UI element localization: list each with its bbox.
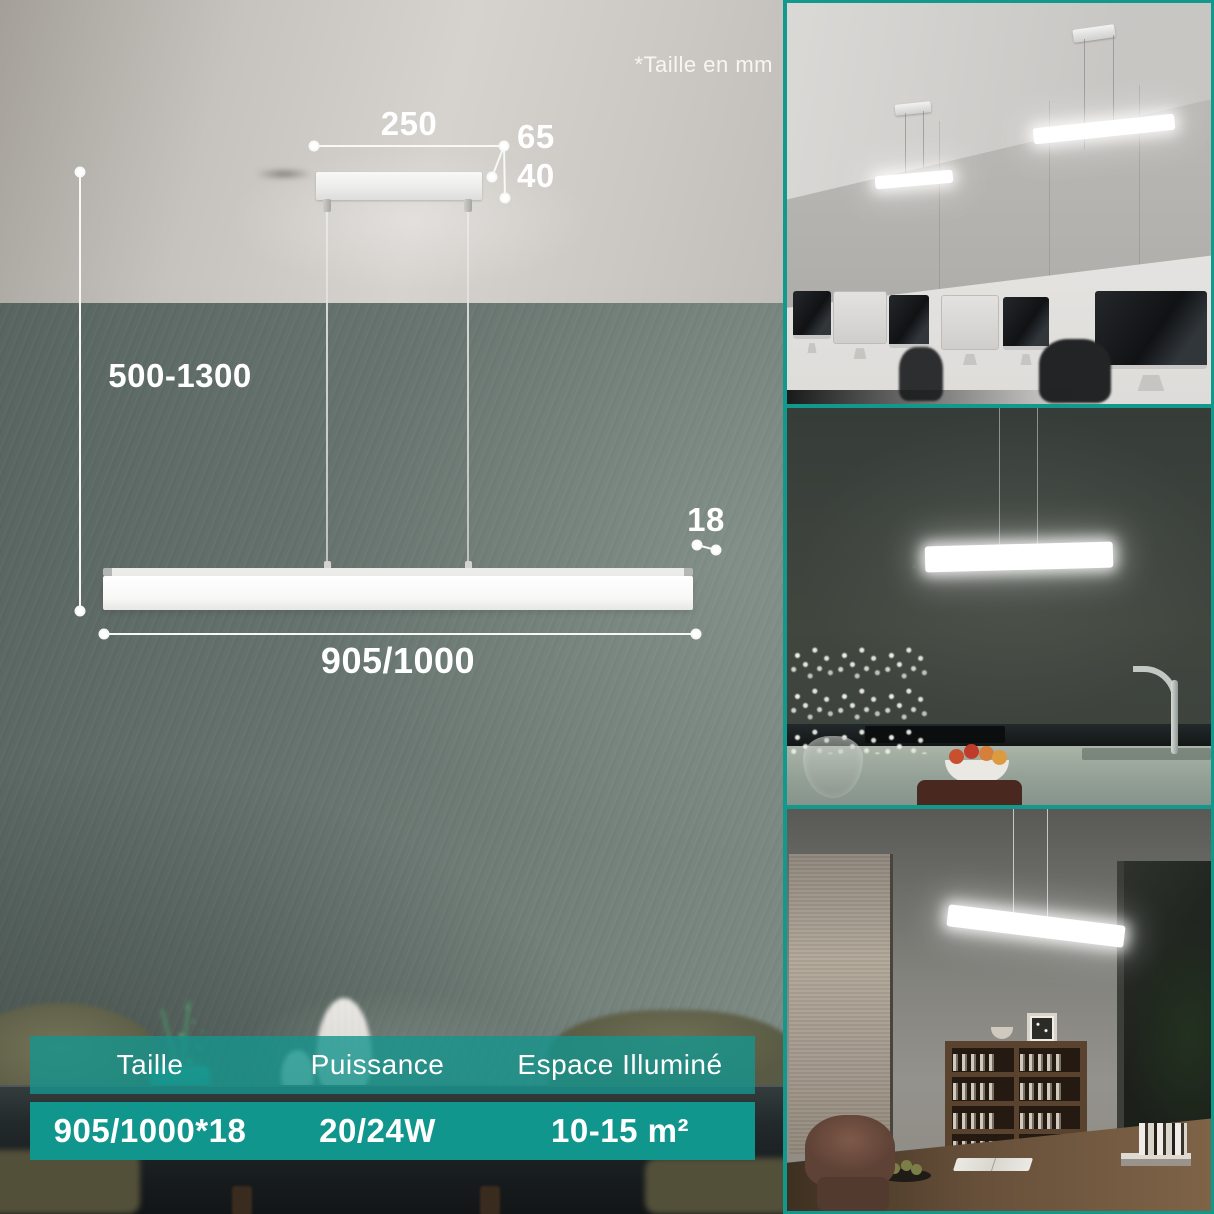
fruit [964,744,979,759]
dimension-diagram-panel: 250 65 40 500-1300 905/1000 18 *Taille e… [0,0,783,1214]
bookshelf-cell [952,1106,1014,1130]
spec-table-header: Taille Puissance Espace Illuminé [30,1036,755,1094]
leather-chair-seat [817,1177,889,1211]
spec-header-espace: Espace Illuminé [485,1049,755,1081]
photo-office-scene [787,3,1211,404]
wall-art-panel [789,854,893,1156]
chair-back [917,780,1022,805]
imac-computer-back [833,291,887,359]
pendant-lamp [925,542,1114,573]
imac-computer-back [941,295,999,365]
desk-shadow [787,390,1084,404]
pendant-wire [923,111,924,167]
sink [1082,748,1211,760]
photo-kitchen-scene [787,408,1211,805]
pendant-wire [1013,809,1014,921]
fruit [911,1164,922,1175]
pendant-wire [905,113,906,175]
faucet-body [1171,680,1178,754]
dim-canopy-height: 40 [517,157,555,195]
pendant-wire [999,408,1000,548]
spec-value-espace: 10-15 m² [485,1112,755,1150]
window [1117,861,1211,1141]
pendant-lamp [946,904,1125,948]
dim-canopy-width: 250 [381,105,438,143]
dim-bar-thickness: 18 [687,501,725,539]
dim-canopy-depth: 65 [517,118,555,156]
spec-header-puissance: Puissance [270,1049,485,1081]
standing-books [1139,1123,1187,1155]
photo-column-frame [783,0,1214,1214]
bookshelf-cell [952,1077,1014,1101]
bookshelf-cell [1019,1077,1081,1101]
flower-bouquet [789,644,929,754]
imac-computer-large [1095,291,1207,391]
spec-value-taille: 905/1000*18 [30,1112,270,1150]
fruit [949,749,964,764]
bookshelf-cell [952,1048,1014,1072]
size-unit-note: *Taille en mm [634,52,773,78]
product-infographic: 250 65 40 500-1300 905/1000 18 *Taille e… [0,0,1214,1214]
dim-suspension-height: 500-1300 [108,357,251,395]
bookshelf-cell [1019,1048,1081,1072]
spec-header-taille: Taille [30,1049,270,1081]
pendant-wire [1037,408,1038,544]
spec-value-puissance: 20/24W [270,1112,485,1150]
spec-table-values: 905/1000*18 20/24W 10-15 m² [30,1102,755,1160]
fruit [992,750,1007,765]
dim-bar-length: 905/1000 [321,640,475,682]
decor-bowl [991,1027,1013,1039]
open-book [953,1158,1033,1171]
dimension-lines [0,0,783,1214]
photo-study-scene [787,809,1211,1211]
picture-frame [1027,1013,1057,1044]
imac-computer [793,291,831,353]
bookshelf-cell [1019,1106,1081,1130]
